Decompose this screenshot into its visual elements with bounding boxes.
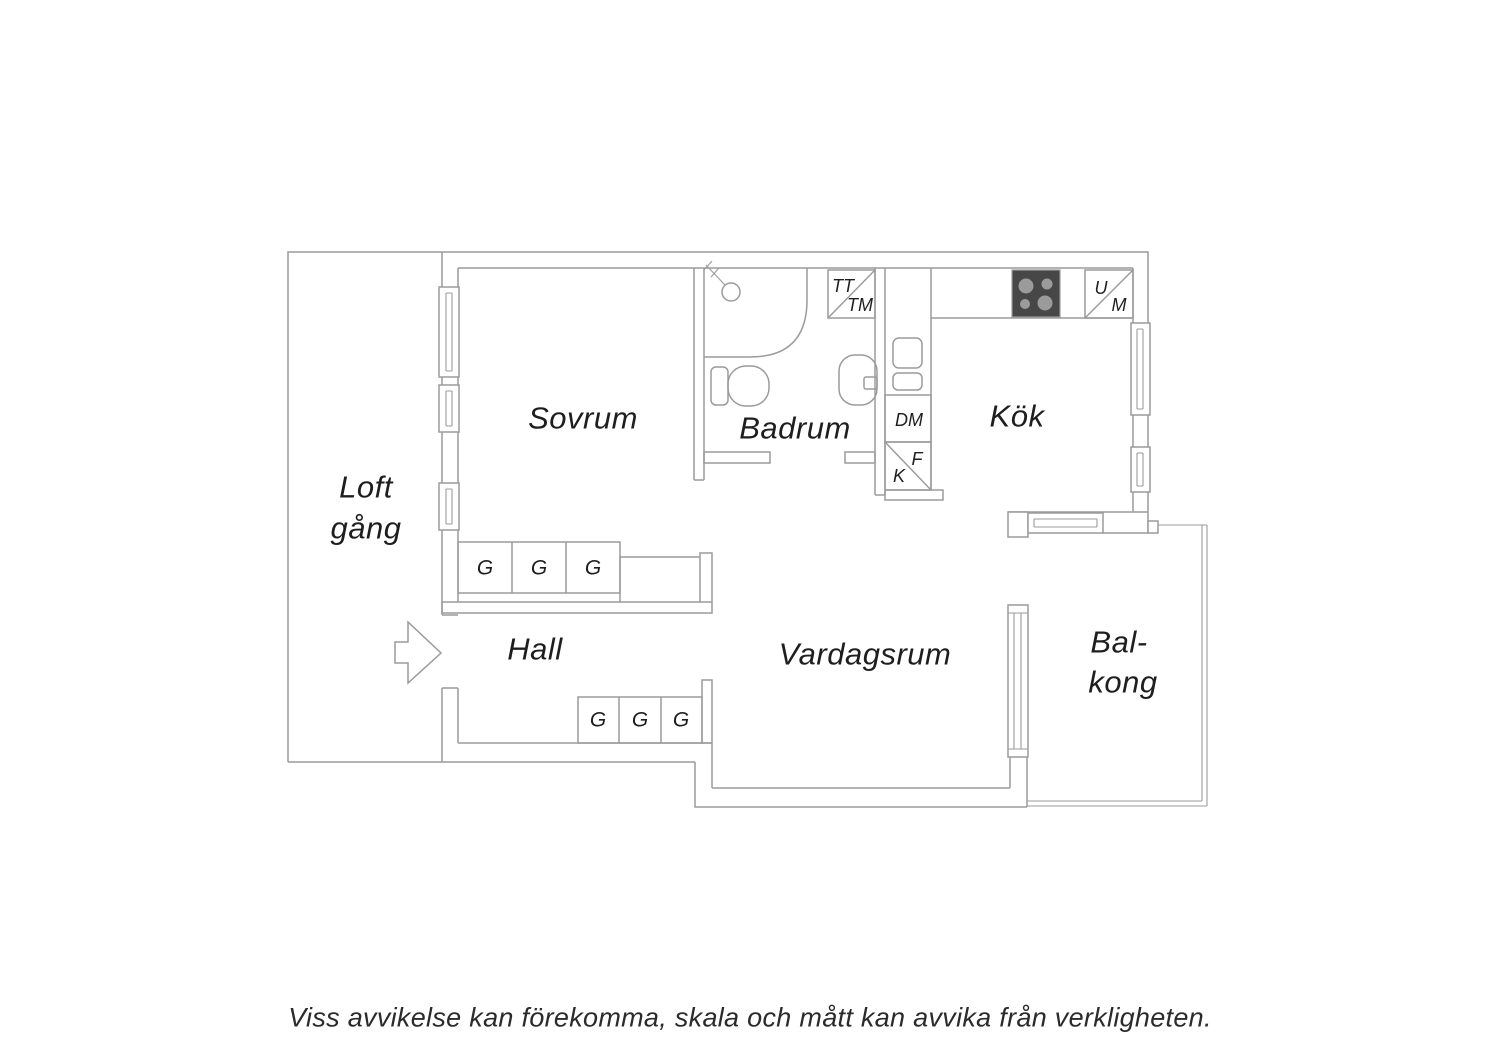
room-label-kok: Kök [990, 401, 1045, 432]
room-label-hall: Hall [507, 634, 562, 665]
balcony-pier [1008, 512, 1028, 537]
vardagsrum-balcony-window [1008, 605, 1028, 757]
disclaimer-caption: Viss avvikelse kan förekomma, skala och … [288, 1005, 1212, 1032]
wardrobe-label-3: G [585, 558, 601, 579]
entry-arrow-icon [395, 622, 441, 683]
label-dishwasher: DM [895, 411, 923, 429]
label-fridge: K [893, 467, 905, 485]
room-label-balkong-line2: kong [1088, 667, 1157, 698]
floor-plan-page: Loft gång Sovrum Badrum Kök Hall Vardags… [0, 0, 1500, 1060]
kitchen-window-1 [1131, 323, 1150, 415]
stove-icon [1012, 270, 1060, 317]
toilet-icon [711, 366, 769, 406]
room-label-loftgang-line1: Loft [339, 472, 393, 503]
room-label-loftgang-line2: gång [331, 513, 402, 544]
room-label-vardagsrum: Vardagsrum [779, 639, 952, 670]
wardrobe-label-4: G [590, 710, 606, 731]
balcony-railing [1027, 521, 1207, 806]
wardrobe-label-2: G [531, 558, 547, 579]
label-micro: M [1112, 296, 1127, 314]
label-freezer: F [912, 450, 923, 468]
room-label-sovrum: Sovrum [528, 403, 638, 434]
room-label-balkong-line1: Bal- [1090, 627, 1147, 658]
floor-plan-drawing [0, 0, 1500, 1060]
sovrum-badrum-wall [694, 268, 704, 480]
shower-icon [704, 261, 807, 357]
label-tumble-dryer: TT [832, 277, 854, 295]
railing-end-block [1148, 521, 1158, 533]
vardagsrum-balcony-wall [1010, 757, 1027, 807]
wardrobe-label-5: G [632, 710, 648, 731]
bathroom-sink-icon [839, 355, 877, 405]
wardrobe-label-1: G [477, 558, 493, 579]
fridge-freezer-box [885, 442, 931, 490]
sovrum-window-1 [439, 287, 459, 377]
label-oven: U [1095, 279, 1108, 297]
room-label-badrum: Badrum [739, 413, 851, 444]
label-washing-machine: TM [847, 296, 873, 314]
wardrobe-label-6: G [673, 710, 689, 731]
badrum-south-wall [704, 452, 875, 463]
sovrum-window-2 [439, 385, 459, 432]
hall-south-wall [458, 743, 1010, 788]
sovrum-window-3 [439, 483, 459, 530]
kitchen-balcony-window [1028, 513, 1103, 533]
kitchen-window-2 [1131, 447, 1150, 492]
wall-stub [702, 680, 712, 743]
kitchen-sink-icon [893, 338, 922, 390]
